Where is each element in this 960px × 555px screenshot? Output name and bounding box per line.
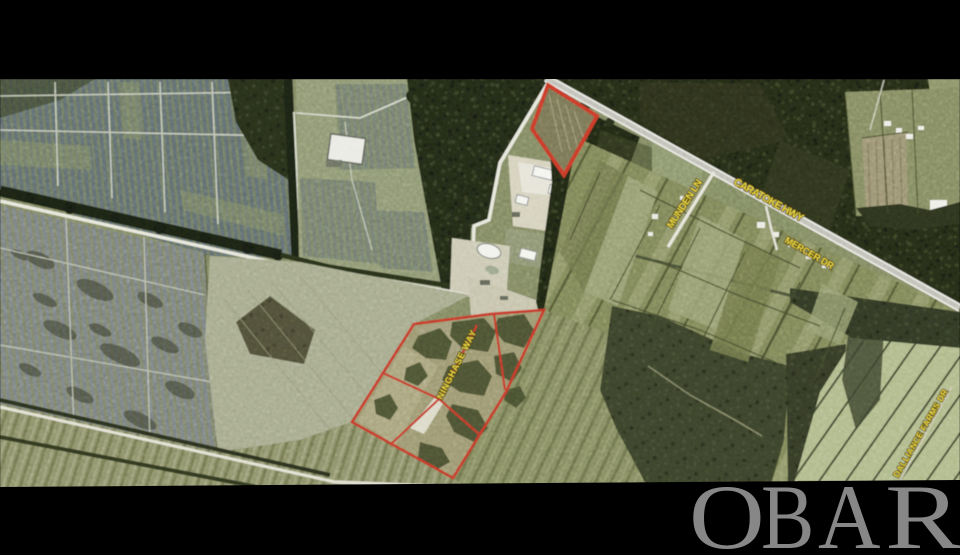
svg-text:R: R <box>885 467 960 555</box>
svg-text:B: B <box>761 466 814 555</box>
svg-text:A: A <box>818 467 880 555</box>
svg-text:O: O <box>689 467 765 555</box>
